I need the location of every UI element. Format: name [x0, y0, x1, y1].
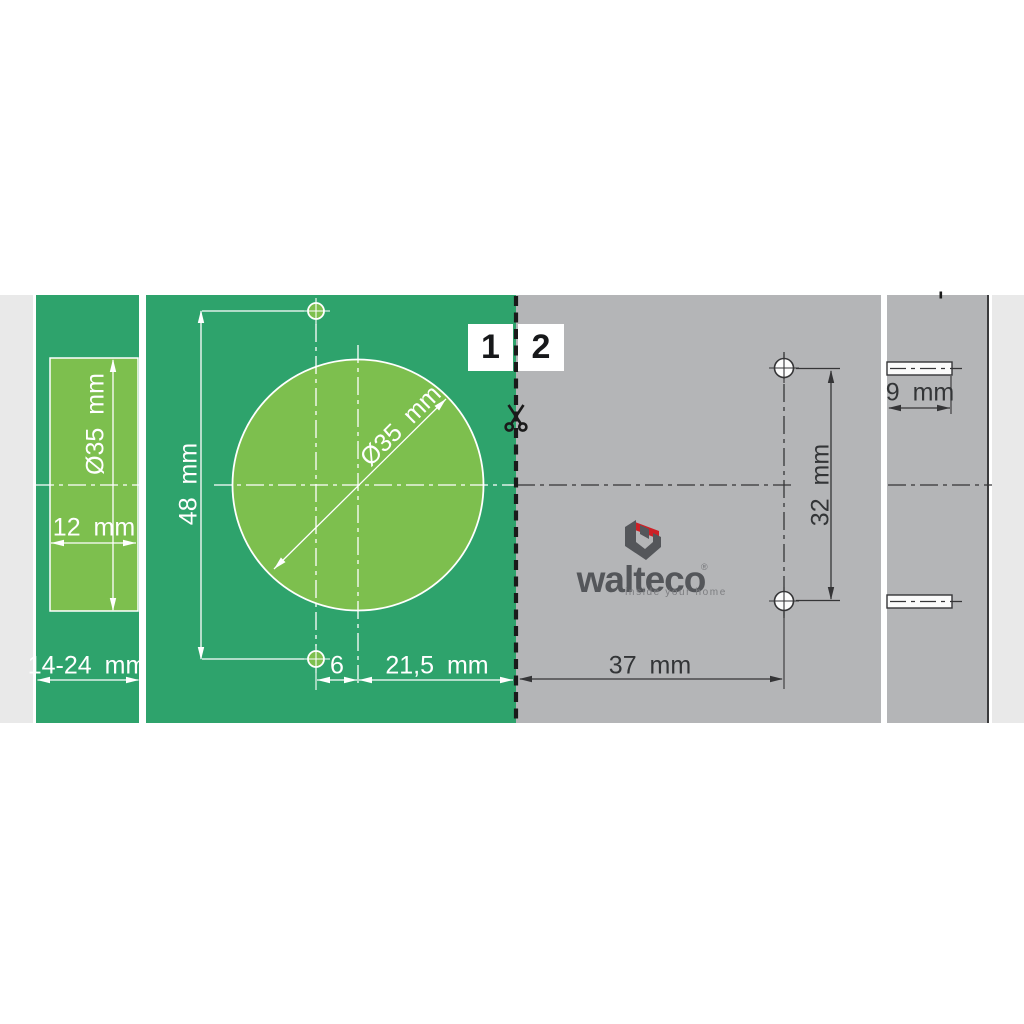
registered-trademark-symbol: ® — [701, 562, 708, 572]
brand-tagline: inside your home — [606, 587, 746, 598]
height-48-label: 48 mm — [177, 443, 202, 525]
step-2-number: 2 — [532, 328, 551, 367]
walteco-logo-icon — [620, 514, 664, 560]
scissors-icon — [506, 405, 527, 431]
hinge-drilling-template: Ø35 mm 12 mm 14-24 mm 48 mm Ø35 mm 6 21,… — [0, 0, 1024, 1024]
edge-strip-drawing — [887, 292, 992, 609]
offset-37-label: 37 mm — [609, 654, 691, 679]
strip-diameter-label: Ø35 mm — [84, 373, 109, 475]
edge-tick-mark — [940, 292, 943, 299]
step-1-badge: 1 — [468, 324, 513, 371]
cabinet-dimension-lines — [517, 352, 840, 689]
step-2-badge: 2 — [518, 324, 564, 371]
overlay-range-label: 14-24 mm — [28, 654, 147, 679]
depth-9-label: 9 mm — [886, 381, 955, 406]
strip-width-label: 12 mm — [53, 516, 135, 541]
step-1-number: 1 — [481, 328, 500, 367]
black-arrowheads — [519, 370, 950, 682]
technical-drawing-overlay — [0, 0, 1024, 1024]
spacing-32-label: 32 mm — [809, 444, 834, 526]
offset-6-label: 6 — [330, 654, 344, 679]
offset-21-5-label: 21,5 mm — [385, 654, 488, 679]
